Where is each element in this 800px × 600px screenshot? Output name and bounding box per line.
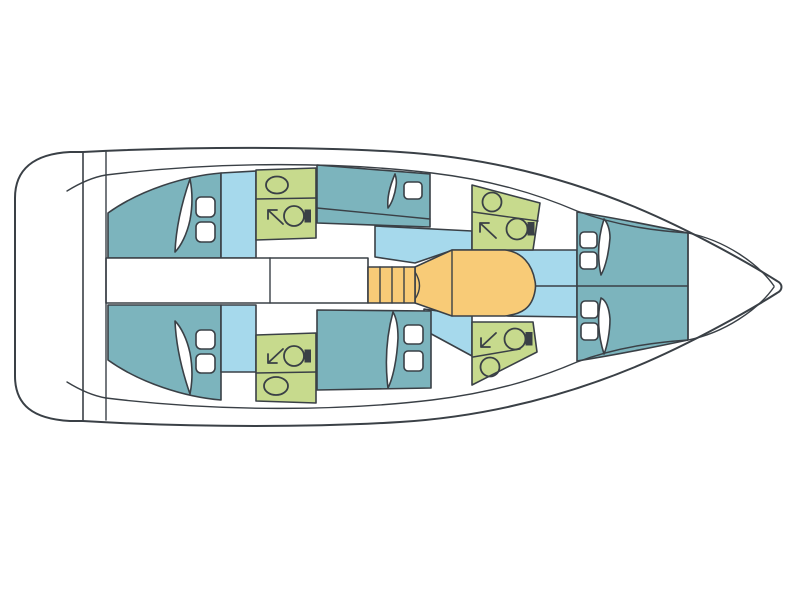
pillow xyxy=(404,325,423,344)
toilet-tank-icon xyxy=(305,350,312,363)
aft-head-starboard xyxy=(256,333,316,403)
aft-head-port xyxy=(256,168,316,240)
aft-head-starboard-divider xyxy=(256,372,316,373)
yacht-floor-plan-canvas xyxy=(0,0,800,600)
pillow xyxy=(580,232,597,248)
pillow xyxy=(404,351,423,371)
pillow xyxy=(196,354,215,373)
aft-cabin-starboard-entry-floor xyxy=(221,305,256,372)
pillow xyxy=(580,252,597,269)
toilet-tank-icon xyxy=(526,332,533,346)
pillow xyxy=(196,197,215,217)
yacht-floor-plan xyxy=(0,0,800,600)
pillow xyxy=(581,323,598,340)
saloon-table xyxy=(415,250,536,316)
toilet-tank-icon xyxy=(305,210,312,223)
pillow xyxy=(196,330,215,349)
pillow xyxy=(581,301,598,318)
toilet-tank-icon xyxy=(528,222,535,236)
pillow xyxy=(404,182,422,199)
aft-head-port-divider xyxy=(256,198,316,199)
corridor xyxy=(106,258,368,303)
pillow xyxy=(196,222,215,242)
aft-cabin-port-entry-floor xyxy=(221,171,256,258)
mid-cabin-starboard xyxy=(317,310,431,390)
